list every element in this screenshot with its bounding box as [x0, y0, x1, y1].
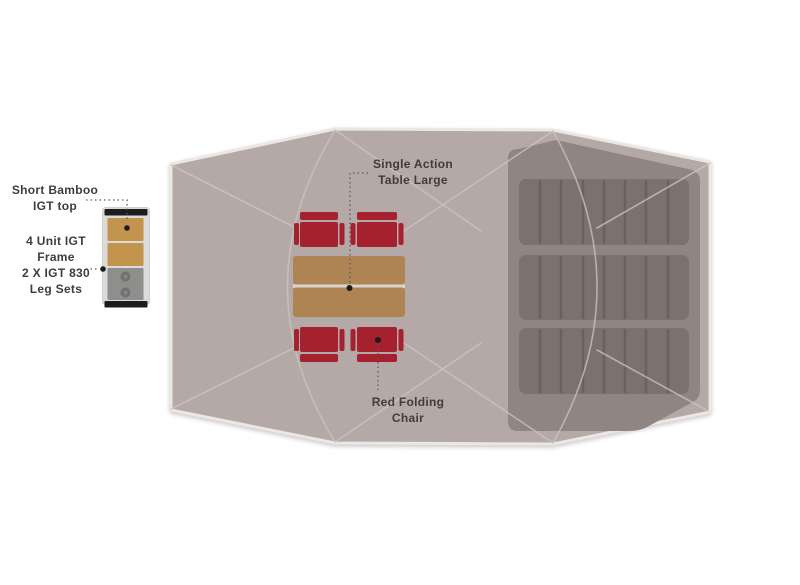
sleeping-mats	[519, 179, 689, 394]
floorplan-drawing	[0, 0, 800, 585]
marker-dot-table	[347, 285, 353, 291]
legend-frame-label: 4 Unit IGT Frame 2 X IGT 830 Leg Sets	[0, 233, 112, 297]
chair-armrest-right	[399, 223, 404, 245]
chair-top-right	[351, 212, 404, 247]
chair-armrest-right	[340, 329, 345, 351]
table-annotation-label: Single Action Table Large	[338, 156, 488, 188]
tent-floorplan-diagram: Single Action Table Large Red Folding Ch…	[0, 0, 800, 585]
chair-backrest	[357, 354, 397, 362]
burner-2-center	[124, 291, 128, 295]
chair-annotation-label: Red Folding Chair	[333, 394, 483, 426]
table-bottom-half	[293, 288, 405, 318]
chair-bottom-right	[351, 327, 404, 362]
burner-1-center	[124, 275, 128, 279]
chair-seat	[300, 222, 338, 247]
chair-seat	[300, 327, 338, 352]
chair-seat	[357, 222, 397, 247]
chair-armrest-left	[294, 223, 299, 245]
chair-backrest	[300, 212, 338, 220]
chair-top-left	[294, 212, 345, 247]
marker-dot-chair	[375, 337, 381, 343]
table-top-half	[293, 256, 405, 285]
chair-armrest-left	[351, 329, 356, 351]
chair-backrest	[300, 354, 338, 362]
chair-armrest-right	[399, 329, 404, 351]
igt-end-bar-bottom	[105, 301, 148, 308]
chair-armrest-left	[294, 329, 299, 351]
chair-backrest	[357, 212, 397, 220]
legend-bamboo-top-label: Short Bamboo IGT top	[0, 182, 110, 214]
igt-end-bar-top	[105, 209, 148, 216]
chair-bottom-left	[294, 327, 345, 362]
chair-armrest-left	[351, 223, 356, 245]
chair-armrest-right	[340, 223, 345, 245]
marker-dot-bamboo-top	[124, 225, 130, 231]
bamboo-top-2	[108, 243, 144, 266]
